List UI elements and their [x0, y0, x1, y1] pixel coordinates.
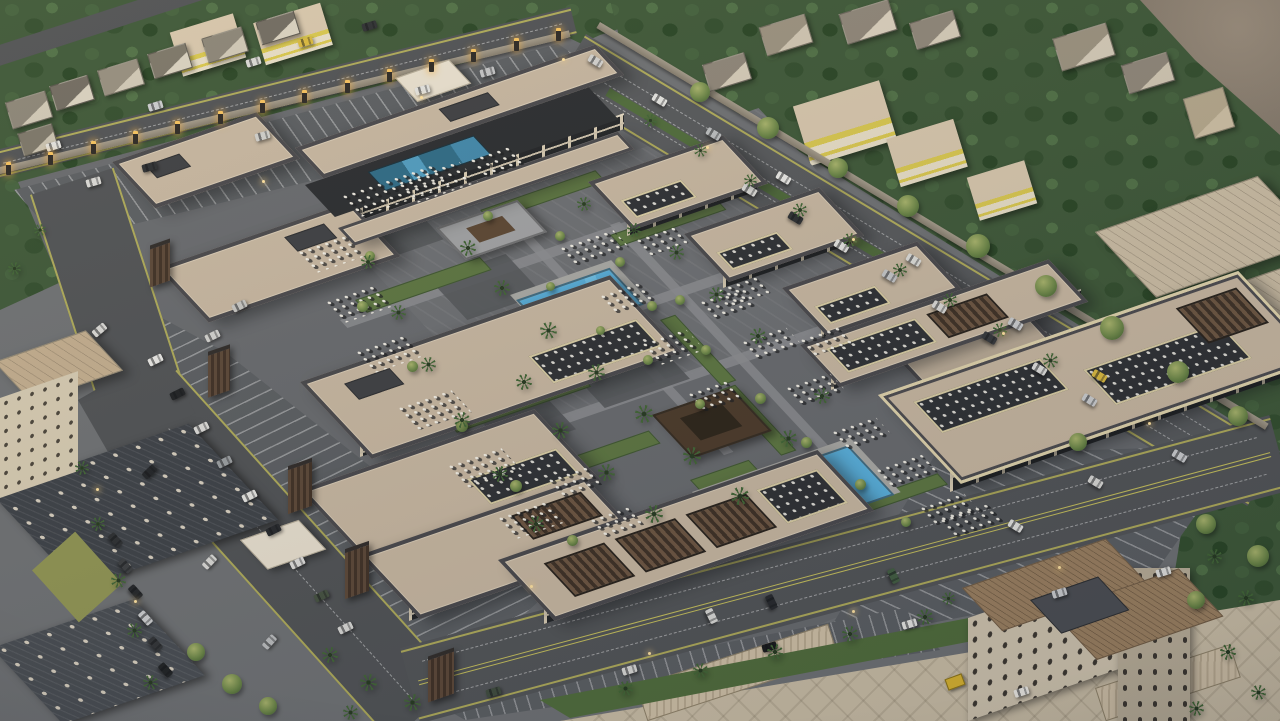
car	[169, 387, 186, 401]
tree	[647, 301, 657, 311]
car	[775, 171, 792, 186]
palm-tree	[1238, 590, 1254, 606]
tree	[966, 234, 990, 258]
street-light	[852, 238, 855, 241]
palm-tree	[360, 674, 377, 691]
outdoor-dining-cluster	[876, 454, 939, 489]
lit-wall-pillar	[302, 90, 307, 103]
car	[1081, 393, 1098, 408]
tree	[695, 399, 705, 409]
car	[118, 558, 134, 575]
car	[1007, 317, 1024, 332]
tree	[755, 393, 766, 404]
car	[245, 56, 262, 68]
palm-tree	[421, 357, 436, 372]
lit-wall-pillar	[345, 80, 350, 93]
car	[141, 161, 158, 173]
palm-tree	[750, 328, 766, 344]
street-light	[96, 488, 99, 491]
tree	[675, 295, 685, 305]
street-light	[262, 180, 265, 183]
house	[201, 26, 249, 63]
car	[254, 130, 271, 142]
palm-tree	[598, 464, 615, 481]
palm-tree	[454, 412, 470, 428]
palm-tree	[143, 675, 158, 690]
tree	[546, 282, 555, 291]
palm-tree	[635, 405, 653, 423]
outdoor-dining-cluster	[548, 467, 602, 498]
house	[1183, 87, 1235, 139]
palm-tree	[644, 114, 657, 127]
palm-tree	[814, 388, 830, 404]
tree	[510, 480, 522, 492]
car	[765, 594, 779, 611]
tree	[596, 326, 605, 335]
tree	[828, 158, 848, 178]
street-light	[530, 585, 533, 588]
palm-tree	[917, 609, 933, 625]
palm-tree	[361, 255, 375, 269]
tree	[701, 345, 711, 355]
tree	[187, 643, 205, 661]
car	[414, 84, 431, 96]
palm-tree	[34, 224, 46, 236]
palm-tree	[943, 293, 957, 307]
palm-tree	[842, 626, 858, 642]
car	[1007, 519, 1024, 534]
palm-tree	[322, 647, 338, 663]
palm-tree	[460, 240, 476, 256]
palm-tree	[588, 364, 605, 381]
tree	[901, 517, 911, 527]
car	[587, 54, 604, 69]
palm-tree	[780, 430, 797, 447]
outdoor-dining-cluster	[688, 381, 744, 413]
tree	[555, 231, 565, 241]
car	[204, 329, 221, 343]
lit-wall-pillar	[133, 131, 138, 144]
car	[128, 584, 144, 601]
outdoor-dining-cluster	[832, 417, 893, 451]
palm-tree	[540, 322, 557, 339]
car	[231, 299, 248, 313]
lit-wall-pillar	[429, 59, 434, 72]
palm-tree	[577, 197, 591, 211]
car	[621, 664, 638, 676]
car	[262, 634, 278, 651]
car	[337, 621, 354, 635]
tree	[690, 82, 710, 102]
house	[255, 11, 300, 46]
scene-objects-layer	[0, 0, 1280, 721]
palm-tree	[645, 505, 663, 523]
tree	[643, 355, 653, 365]
tree	[801, 437, 812, 448]
tree	[1247, 545, 1269, 567]
car	[108, 532, 124, 549]
tree	[757, 117, 779, 139]
palm-tree	[767, 644, 783, 660]
palm-tree	[516, 374, 532, 390]
outdoor-dining-cluster	[590, 507, 644, 538]
palm-tree	[1207, 549, 1222, 564]
street-light	[648, 652, 651, 655]
tree	[615, 257, 625, 267]
car	[361, 20, 378, 32]
house	[702, 52, 752, 92]
tree	[357, 301, 368, 312]
lit-wall-pillar	[556, 28, 561, 41]
house	[909, 10, 961, 50]
palm-tree	[75, 461, 89, 475]
car	[147, 100, 164, 112]
palm-tree	[793, 203, 807, 217]
car	[901, 618, 918, 630]
palm-tree	[492, 466, 508, 482]
car	[1091, 369, 1108, 384]
car	[1155, 566, 1172, 578]
palm-tree	[343, 705, 358, 720]
palm-tree	[893, 263, 907, 277]
tree	[259, 697, 277, 715]
car	[297, 36, 314, 48]
car	[887, 568, 901, 585]
lit-wall-pillar	[260, 100, 265, 113]
scene-root	[0, 0, 1280, 721]
tree	[1187, 591, 1205, 609]
car	[265, 523, 282, 537]
car	[485, 686, 502, 698]
palm-tree	[693, 663, 708, 678]
car	[705, 608, 719, 625]
street-light	[420, 96, 423, 99]
car	[141, 464, 157, 480]
house	[1052, 23, 1115, 72]
house	[147, 43, 193, 80]
lit-wall-pillar	[48, 152, 53, 165]
street-light	[562, 58, 565, 61]
car	[1051, 587, 1068, 599]
palm-tree	[683, 447, 701, 465]
tree	[407, 361, 418, 372]
car	[1087, 475, 1104, 490]
outdoor-dining-cluster	[470, 147, 524, 178]
car	[201, 554, 217, 570]
tree	[567, 535, 578, 546]
lit-wall-pillar	[218, 111, 223, 124]
palm-tree	[744, 174, 757, 187]
palm-tree	[91, 517, 105, 531]
tree	[1228, 406, 1248, 426]
street-light	[1002, 332, 1005, 335]
street-light	[1058, 566, 1061, 569]
car	[148, 636, 164, 653]
house	[838, 0, 897, 45]
car	[1013, 686, 1030, 698]
lit-wall-pillar	[471, 49, 476, 62]
palm-tree	[1189, 701, 1204, 716]
car	[193, 421, 210, 435]
palm-tree	[618, 681, 633, 696]
palm-tree	[731, 487, 749, 505]
outdoor-dining-cluster	[342, 165, 452, 217]
car	[313, 589, 330, 603]
palm-tree	[669, 245, 684, 260]
car	[651, 93, 668, 108]
lit-wall-pillar	[91, 141, 96, 154]
lit-wall-pillar	[175, 121, 180, 134]
palm-tree	[8, 262, 21, 275]
outdoor-dining-cluster	[298, 235, 367, 273]
palm-tree	[1251, 685, 1266, 700]
street-light	[852, 610, 855, 613]
car	[479, 66, 496, 78]
house	[97, 58, 145, 96]
house	[759, 14, 814, 57]
palm-tree	[694, 144, 707, 157]
car	[705, 127, 722, 142]
tree	[1100, 316, 1124, 340]
car	[216, 455, 233, 469]
tree	[222, 674, 242, 694]
lit-wall-pillar	[6, 162, 11, 175]
car	[1171, 449, 1188, 464]
house	[5, 90, 53, 129]
palm-tree	[552, 422, 569, 439]
outdoor-dining-cluster	[800, 327, 853, 356]
tree	[483, 211, 493, 221]
palm-tree	[391, 305, 406, 320]
palm-tree	[993, 323, 1007, 337]
car	[289, 556, 306, 570]
car	[905, 253, 922, 268]
tree	[1167, 361, 1189, 383]
tree	[1035, 275, 1057, 297]
tree	[1196, 514, 1216, 534]
palm-tree	[627, 223, 641, 237]
palm-tree	[528, 516, 544, 532]
car	[158, 662, 174, 679]
palm-tree	[942, 592, 955, 605]
tree	[855, 479, 866, 490]
palm-tree	[127, 623, 142, 638]
house	[49, 75, 95, 112]
street-light	[706, 146, 709, 149]
palm-tree	[1220, 644, 1236, 660]
lit-wall-pillar	[514, 38, 519, 51]
lit-wall-pillar	[387, 69, 392, 82]
tree	[897, 195, 919, 217]
car	[241, 489, 258, 503]
street-light	[134, 600, 137, 603]
car	[85, 176, 102, 188]
palm-tree	[494, 280, 510, 296]
car	[91, 322, 108, 338]
tree	[1069, 433, 1087, 451]
palm-tree	[404, 694, 421, 711]
house	[1121, 52, 1176, 95]
street-light	[1148, 422, 1151, 425]
car	[138, 610, 154, 627]
palm-tree	[709, 287, 724, 302]
car	[147, 353, 164, 367]
palm-tree	[111, 573, 126, 588]
palm-tree	[1043, 353, 1058, 368]
